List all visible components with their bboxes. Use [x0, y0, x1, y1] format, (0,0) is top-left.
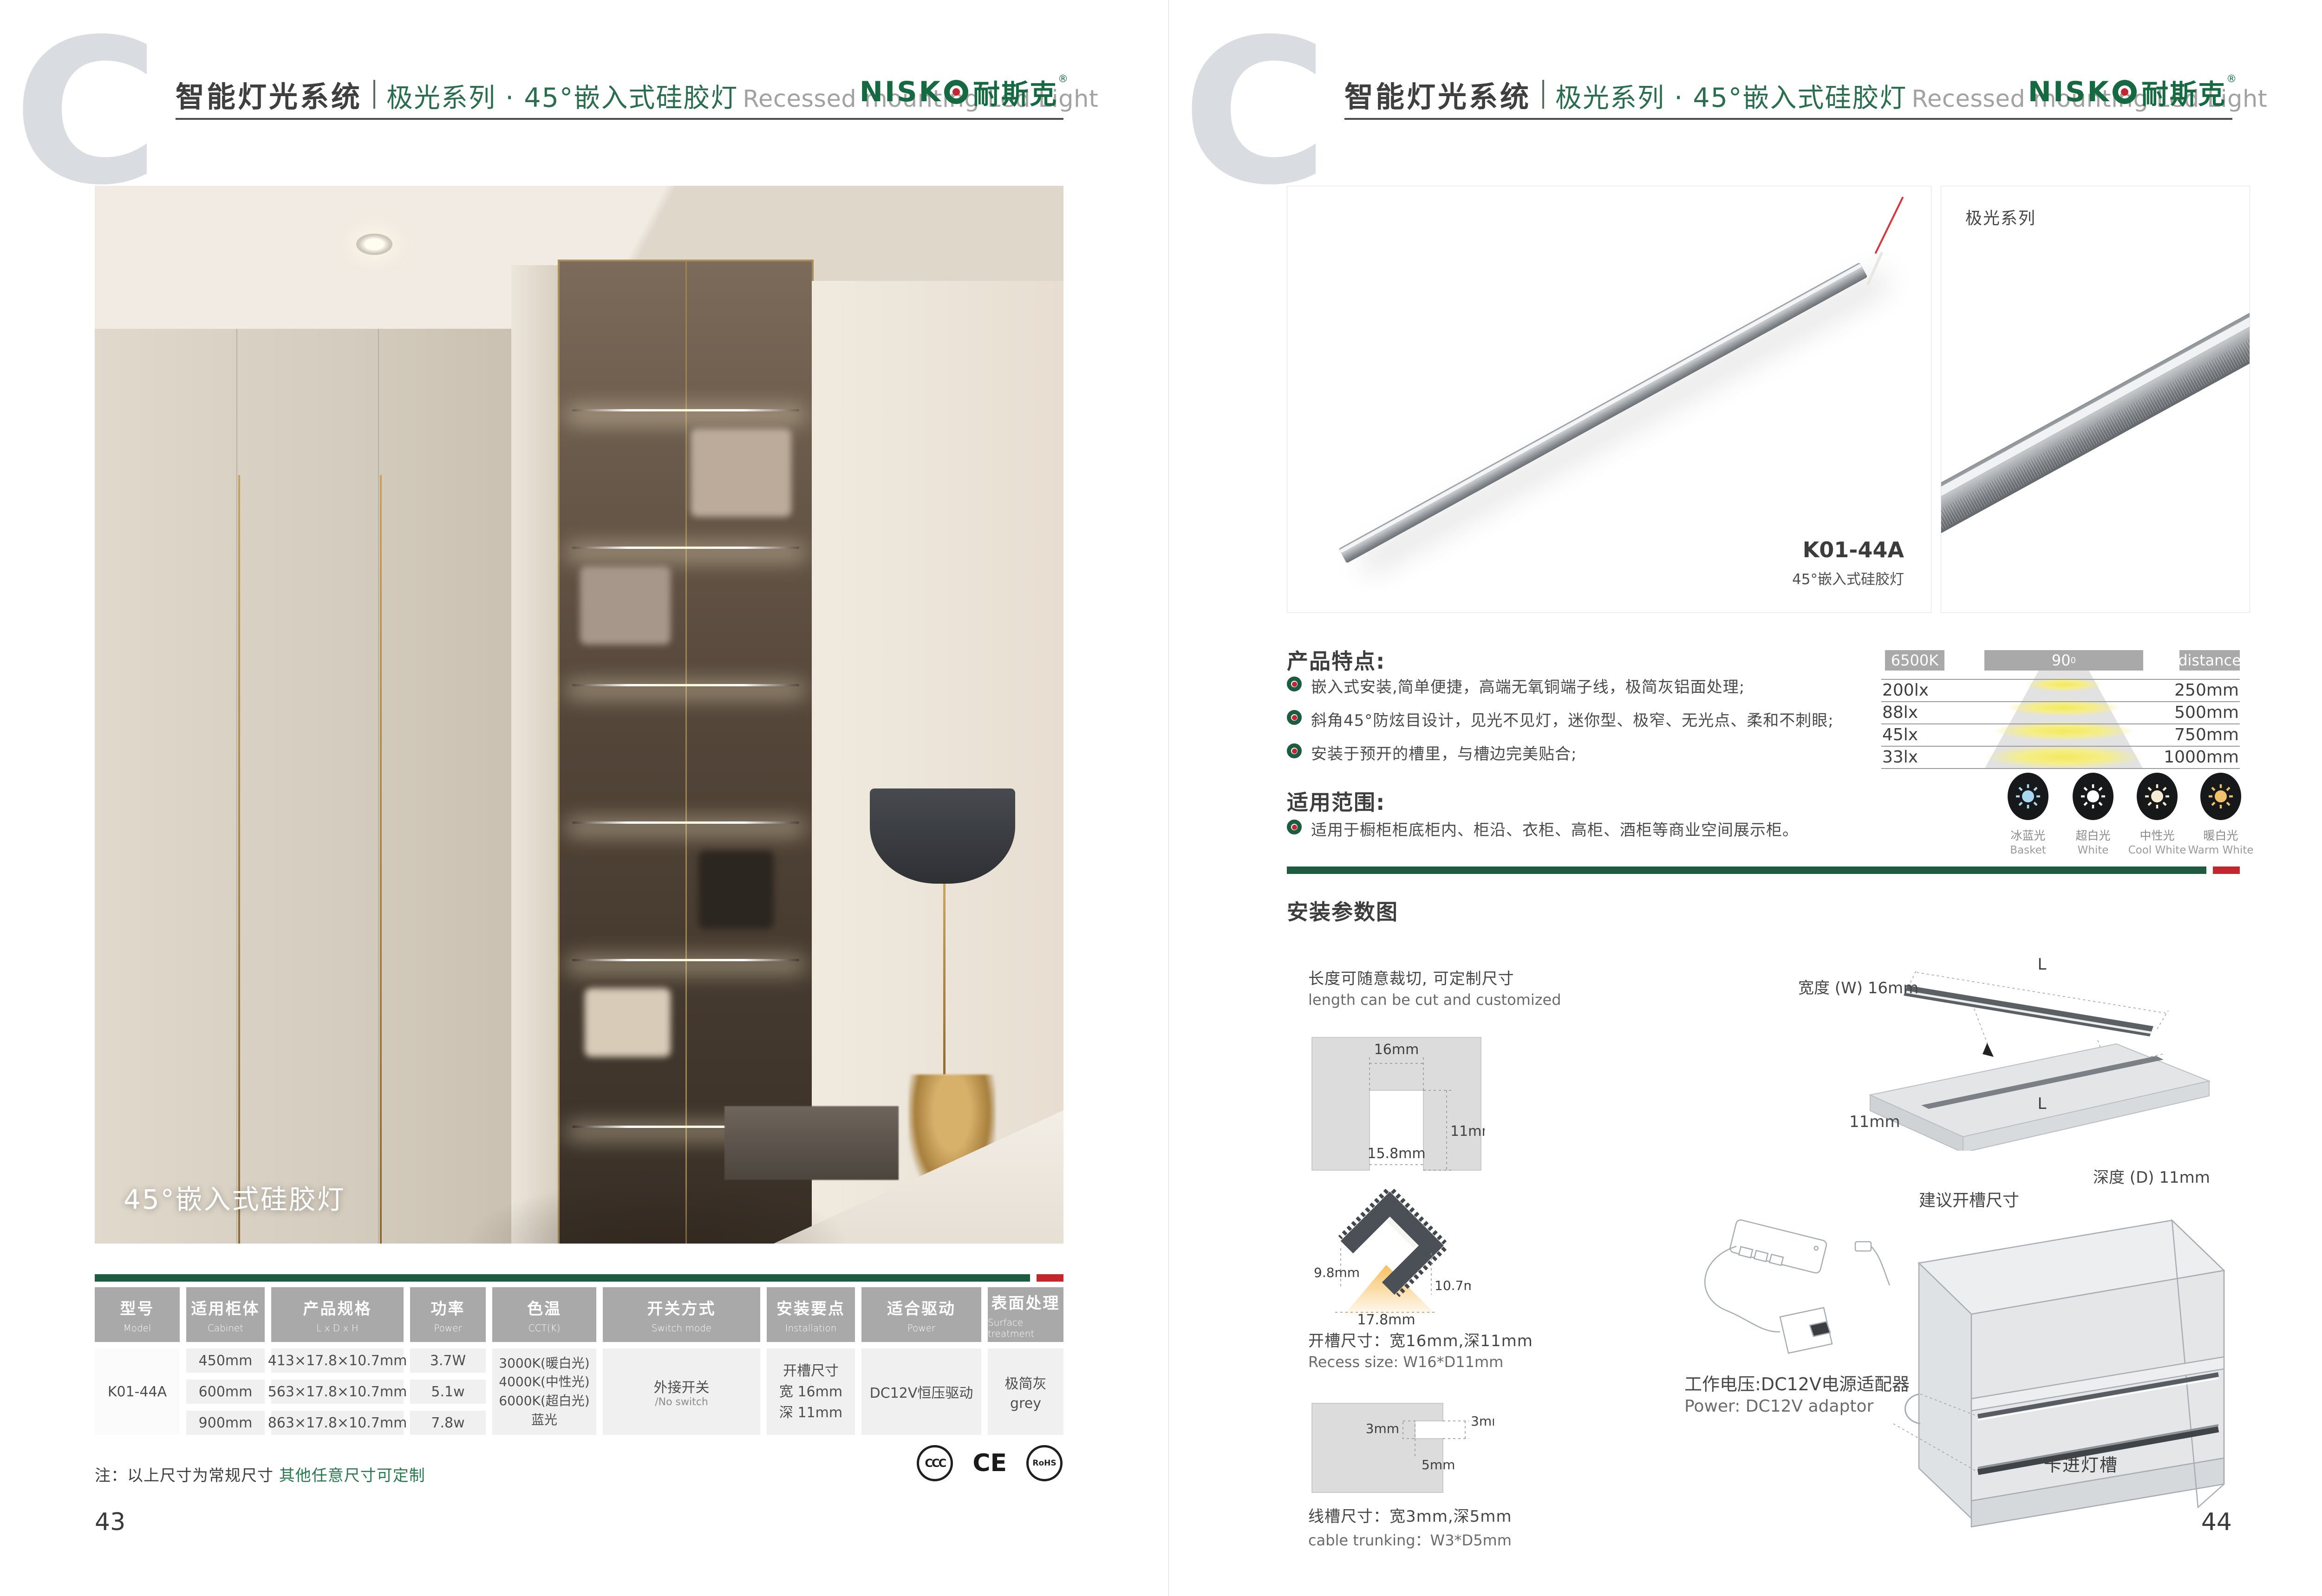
light-color-icon	[2137, 773, 2178, 820]
svg-text:10.7mm: 10.7mm	[1435, 1278, 1471, 1293]
table-row: 450mm	[186, 1348, 265, 1373]
led-wire-red	[1874, 196, 1904, 254]
col-installation: 安装要点Installation	[767, 1287, 855, 1342]
chart-angle-label: 900	[1984, 650, 2143, 671]
cable-trunk-diagram: 3mm 3mm 5mm	[1308, 1387, 1494, 1498]
svg-text:9.8mm: 9.8mm	[1314, 1265, 1360, 1280]
series-tag: 极光系列	[1965, 205, 2036, 229]
cabinet-groove-label: 卡进灯槽	[2044, 1451, 2118, 1476]
catalog-spread: C 智能灯光系统 极光系列 · 45°嵌入式硅胶灯 Recessed mount…	[0, 0, 2322, 1596]
logo-latin: NISK	[860, 76, 942, 108]
feature-item: 安装于预开的槽里，与槽边完美贴合;	[1287, 741, 1863, 764]
light-color-icon	[2200, 773, 2241, 820]
panel-edge-label: 11mm	[1849, 1113, 1900, 1131]
cut-note-zh: 长度可随意裁切, 可定制尺寸	[1308, 966, 1514, 989]
swatch-warm-white: 暖白光 Warm White	[2186, 773, 2256, 856]
photo-cabinet-corner	[511, 265, 558, 1244]
cell-specs: 413×17.8×10.7mm 563×17.8×10.7mm 863×17.8…	[271, 1348, 404, 1435]
ce-icon: CE	[972, 1449, 1007, 1477]
trunk-size-zh: 线槽尺寸：宽3mm,深5mm	[1308, 1504, 1512, 1526]
cut-note-en: length can be cut and customized	[1308, 991, 1561, 1009]
scope-title: 适用范围:	[1287, 786, 1385, 816]
swatch-white: 超白光 White	[2058, 773, 2128, 856]
svg-text:L: L	[2038, 956, 2047, 974]
led-bar-closeup	[1941, 243, 2250, 573]
recess-size-en: Recess size: W16*D11mm	[1308, 1353, 1503, 1371]
swatch-cool-white: 中性光 Cool White	[2122, 773, 2192, 856]
product-photo-main: K01-44A 45°嵌入式硅胶灯	[1287, 186, 1931, 613]
light-color-icon	[2073, 773, 2113, 820]
bullet-icon	[1287, 820, 1302, 834]
chart-distance-label: distance	[2179, 650, 2240, 671]
ccc-icon: CCC	[917, 1445, 953, 1481]
power-note-zh: 工作电压:DC12V电源适配器	[1684, 1370, 1910, 1395]
col-surface: 表面处理Surface treatment	[988, 1287, 1063, 1342]
spec-table: 型号Model 适用柜体Cabinet 产品规格L x D x H 功率Powe…	[95, 1287, 1063, 1435]
feature-item: 斜角45°防炫目设计，见光不见灯，迷你型、极窄、无光点、柔和不刺眼;	[1287, 708, 1863, 730]
adapter-illustration	[1670, 1216, 1893, 1362]
trunk-size-en: cable trunking：W3*D5mm	[1308, 1529, 1512, 1550]
panel-width-label: 宽度 (W) 16mm	[1798, 975, 1918, 998]
chapter-watermark-c: C	[13, 13, 160, 213]
page-44: C 智能灯光系统 极光系列 · 45°嵌入式硅胶灯 Recessed mount…	[1168, 0, 2322, 1596]
table-row: 5.1w	[410, 1380, 486, 1404]
svg-text:3mm: 3mm	[1366, 1421, 1399, 1436]
distance-value: 750mm	[2174, 725, 2239, 744]
note-highlight: 其他任意尺寸可定制	[279, 1466, 425, 1485]
rohs-icon: RoHS	[1026, 1445, 1063, 1481]
photo-glass-cabinet	[558, 260, 814, 1244]
lux-value: 33lx	[1882, 748, 1918, 767]
svg-text:3mm: 3mm	[1471, 1414, 1494, 1429]
svg-text:17.8mm: 17.8mm	[1357, 1312, 1415, 1325]
svg-text:L: L	[2038, 1094, 2047, 1113]
svg-text:15.8mm: 15.8mm	[1367, 1146, 1425, 1162]
photo-caption: 45°嵌入式硅胶灯	[124, 1178, 346, 1217]
chart-kelvin-label: 6500K	[1885, 650, 1944, 671]
chapter-watermark-c: C	[1182, 13, 1329, 213]
size-note: 注：以上尺寸为常规尺寸 其他任意尺寸可定制	[95, 1463, 425, 1485]
svg-text:5mm: 5mm	[1422, 1457, 1455, 1472]
header-rule	[1344, 118, 2232, 120]
col-driver: 适合驱动Power	[861, 1287, 981, 1342]
table-row: 3.7W	[410, 1348, 486, 1373]
light-color-icon	[2008, 773, 2048, 820]
led-bar-product	[1338, 262, 1867, 563]
header-series-title: 极光系列 · 45°嵌入式硅胶灯	[1555, 77, 1907, 115]
certification-badges: CCC CE RoHS	[917, 1445, 1063, 1481]
svg-text:11mm: 11mm	[1450, 1123, 1485, 1140]
panel-caption: 建议开槽尺寸	[1919, 1187, 2019, 1211]
scope-item: 适用于橱柜柜底柜内、柜沿、衣柜、高柜、酒柜等商业空间展示柜。	[1287, 817, 1863, 840]
page-43: C 智能灯光系统 极光系列 · 45°嵌入式硅胶灯 Recessed mount…	[0, 0, 1168, 1596]
cabinet-illustration	[1893, 1212, 2251, 1556]
photo-wardrobe-doors	[95, 329, 511, 1244]
page-number: 44	[2201, 1508, 2232, 1536]
brand-logo: NISK 耐斯克 ®	[860, 72, 1068, 111]
spec-table-body: K01-44A 450mm 600mm 900mm 413×17.8×10.7m…	[95, 1348, 1063, 1435]
spec-table-header: 型号Model 适用柜体Cabinet 产品规格L x D x H 功率Powe…	[95, 1287, 1063, 1342]
product-model-sub: 45°嵌入式硅胶灯	[1792, 567, 1904, 588]
photo-bench	[724, 1106, 899, 1180]
recess-size-zh: 开槽尺寸：宽16mm,深11mm	[1308, 1328, 1533, 1351]
product-photo-closeup: 极光系列	[1941, 186, 2250, 613]
table-row: 600mm	[186, 1380, 265, 1404]
lux-value: 200lx	[1882, 681, 1929, 700]
bullet-icon	[1287, 710, 1302, 725]
header-rule	[176, 118, 1063, 120]
cell-driver: DC12V恒压驱动	[861, 1348, 981, 1435]
header-system-title: 智能灯光系统	[176, 73, 362, 115]
svg-text:16mm: 16mm	[1374, 1042, 1419, 1058]
power-note-en: Power: DC12V adaptor	[1684, 1397, 1873, 1416]
led-wire-connector	[1866, 251, 1883, 286]
col-power: 功率Power	[410, 1287, 486, 1342]
downlight-icon	[356, 234, 392, 255]
cell-model: K01-44A	[95, 1348, 180, 1435]
showcase-photo: 45°嵌入式硅胶灯	[95, 186, 1063, 1244]
cell-cabinet-sizes: 450mm 600mm 900mm	[186, 1348, 265, 1435]
light-cone	[1984, 671, 2143, 769]
swatch-ice-blue: 冰蓝光 Basket	[1993, 773, 2063, 856]
recess-diagram: 16mm 11mm 15.8mm	[1308, 1021, 1485, 1174]
col-cct: 色温CCT(K)	[492, 1287, 596, 1342]
table-row: 863×17.8×10.7mm	[271, 1411, 404, 1435]
feature-item: 嵌入式安装,简单便捷，高端无氧铜端子线，极简灰铝面处理;	[1287, 674, 1863, 697]
page-number: 43	[95, 1508, 125, 1536]
header-separator	[1542, 80, 1544, 109]
table-row: 563×17.8×10.7mm	[271, 1380, 404, 1404]
cell-powers: 3.7W 5.1w 7.8w	[410, 1348, 486, 1435]
logo-registered-mark: ®	[1058, 73, 1068, 85]
panel-depth-label: 深度 (D) 11mm	[2093, 1165, 2210, 1187]
table-row: 900mm	[186, 1411, 265, 1435]
accent-bar	[1287, 866, 2240, 874]
cell-cct: 3000K(暖白光) 4000K(中性光) 6000K(超白光) 蓝光	[492, 1348, 596, 1435]
cell-switch: 外接开关 /No switch	[603, 1348, 760, 1435]
logo-o-icon	[2113, 80, 2137, 104]
distance-value: 250mm	[2174, 681, 2239, 700]
logo-cn: 耐斯克	[973, 72, 1058, 111]
accent-bar	[95, 1274, 1063, 1282]
header-series-title: 极光系列 · 45°嵌入式硅胶灯	[386, 77, 738, 115]
logo-o-icon	[944, 80, 968, 104]
lux-value: 88lx	[1882, 703, 1918, 722]
color-temperature-swatches: 冰蓝光 Basket 超白光 White	[1881, 773, 2240, 856]
distance-value: 500mm	[2174, 703, 2239, 722]
cell-installation: 开槽尺寸 宽 16mm 深 11mm	[767, 1348, 855, 1435]
table-row: 7.8w	[410, 1411, 486, 1435]
distance-value: 1000mm	[2164, 748, 2239, 767]
install-title: 安装参数图	[1287, 895, 1398, 926]
product-model: K01-44A	[1803, 537, 1904, 562]
header-system-title: 智能灯光系统	[1344, 73, 1531, 115]
features-title: 产品特点:	[1287, 645, 1385, 675]
profile-diagram: 9.8mm 10.7mm 17.8mm	[1313, 1179, 1471, 1325]
cell-surface: 极简灰 grey	[988, 1348, 1063, 1435]
col-cabinet: 适用柜体Cabinet	[186, 1287, 265, 1342]
header-separator	[373, 80, 375, 109]
table-row: 413×17.8×10.7mm	[271, 1348, 404, 1373]
col-switch: 开关方式Switch mode	[603, 1287, 760, 1342]
bullet-icon	[1287, 743, 1302, 758]
light-distribution-chart: 6500K 900 distance	[1881, 650, 2240, 772]
brand-logo: NISK 耐斯克 ®	[2028, 72, 2237, 111]
bullet-icon	[1287, 677, 1302, 691]
lux-value: 45lx	[1882, 725, 1918, 744]
col-spec: 产品规格L x D x H	[271, 1287, 404, 1342]
col-model: 型号Model	[95, 1287, 180, 1342]
